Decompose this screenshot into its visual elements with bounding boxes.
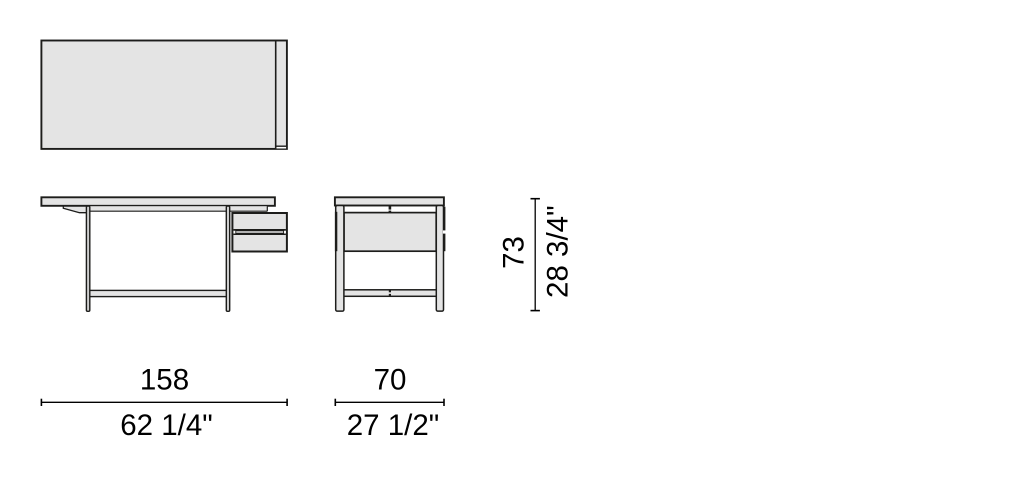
- svg-text:27 1/2": 27 1/2": [347, 409, 440, 442]
- svg-text:158: 158: [140, 364, 189, 397]
- svg-text:70: 70: [374, 364, 407, 397]
- svg-text:73: 73: [497, 236, 530, 269]
- svg-text:28 3/4": 28 3/4": [542, 205, 575, 298]
- svg-text:62 1/4": 62 1/4": [120, 409, 213, 442]
